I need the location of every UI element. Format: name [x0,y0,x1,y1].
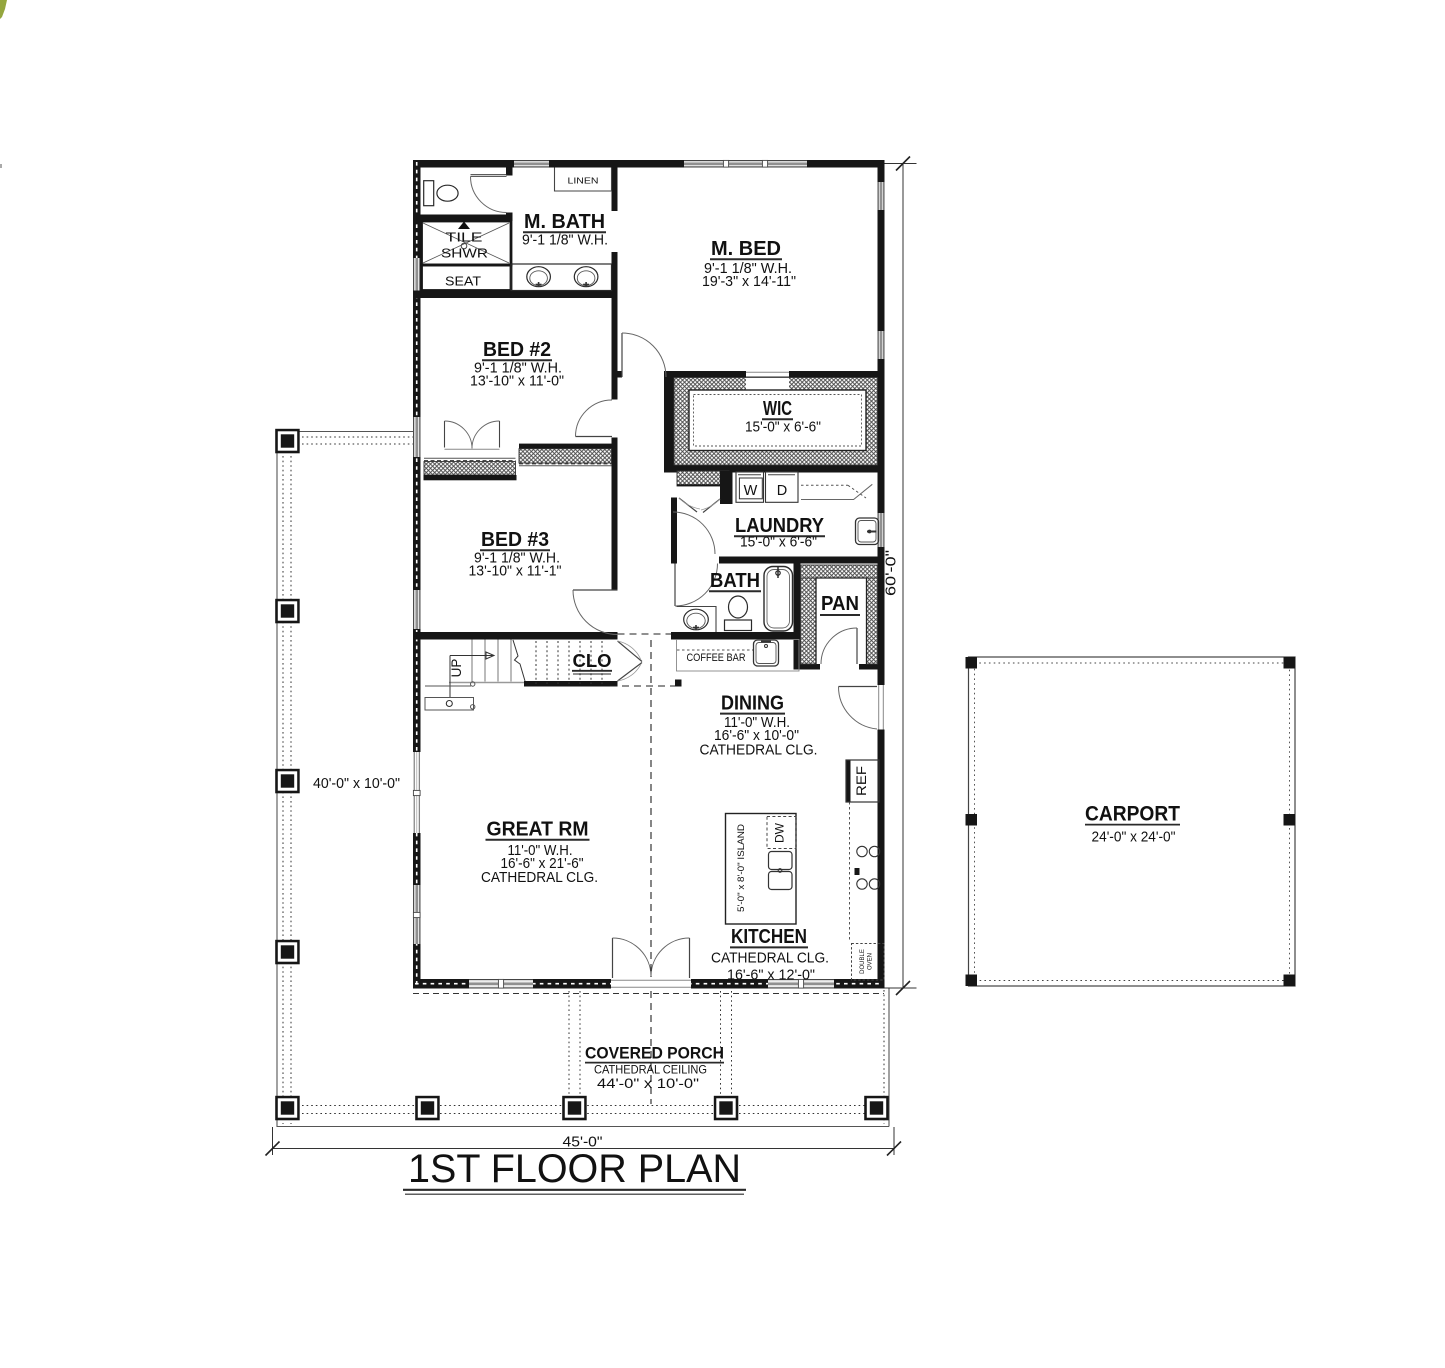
svg-text:24'-0" x 24'-0": 24'-0" x 24'-0" [1092,830,1176,846]
svg-text:LINEN: LINEN [568,177,599,186]
svg-text:16'-6" x 12'-0": 16'-6" x 12'-0" [727,967,815,984]
svg-text:CATHEDRAL CEILING: CATHEDRAL CEILING [594,1063,707,1077]
svg-text:W: W [744,483,758,499]
svg-text:40'-0" x 10'-0": 40'-0" x 10'-0" [313,776,400,792]
svg-text:CATHEDRAL CLG.: CATHEDRAL CLG. [711,950,829,967]
svg-text:1ST FLOOR PLAN: 1ST FLOOR PLAN [408,1147,741,1191]
svg-text:CATHEDRAL CLG.: CATHEDRAL CLG. [700,742,818,759]
svg-text:CARPORT: CARPORT [1085,803,1180,826]
svg-text:CLO: CLO [573,651,612,671]
svg-text:OVEN: OVEN [868,953,874,970]
svg-text:19'-3" x 14'-11": 19'-3" x 14'-11" [702,273,796,290]
svg-text:15'-0" x 6'-6": 15'-0" x 6'-6" [740,534,817,551]
svg-text:KITCHEN: KITCHEN [731,926,807,948]
svg-text:CATHEDRAL CLG.: CATHEDRAL CLG. [481,869,598,886]
svg-text:SEAT: SEAT [445,275,481,289]
svg-text:M. BED: M. BED [711,238,781,260]
svg-text:REF: REF [854,766,869,796]
svg-text:BATH: BATH [710,570,760,592]
svg-text:DOUBLE: DOUBLE [860,949,866,974]
svg-text:13'-10" x 11'-1": 13'-10" x 11'-1" [469,563,562,580]
svg-text:GREAT RM: GREAT RM [487,819,589,841]
svg-text:COVERED PORCH: COVERED PORCH [585,1044,724,1063]
svg-text:BED #3: BED #3 [481,529,549,551]
svg-text:WIC: WIC [763,398,792,420]
svg-text:COFFEE BAR: COFFEE BAR [687,652,746,664]
svg-text:13'-10" x 11'-0": 13'-10" x 11'-0" [470,373,564,390]
svg-text:15'-0" x 6'-6": 15'-0" x 6'-6" [745,419,821,436]
svg-text:44'-0" x 10'-0": 44'-0" x 10'-0" [597,1076,699,1091]
svg-text:BED #2: BED #2 [483,339,551,361]
svg-text:PAN: PAN [821,593,859,615]
svg-text:M. BATH: M. BATH [524,211,605,233]
svg-text:TILE: TILE [446,230,483,245]
svg-text:DW: DW [773,822,787,843]
svg-text:5'-0" x 8'-0" ISLAND: 5'-0" x 8'-0" ISLAND [736,824,747,912]
svg-text:UP: UP [449,659,464,678]
svg-text:D: D [777,483,787,499]
svg-text:DINING: DINING [721,693,784,715]
svg-text:SHWR: SHWR [441,246,488,261]
svg-text:9'-1 1/8" W.H.: 9'-1 1/8" W.H. [522,232,608,249]
svg-text:60'-0": 60'-0" [883,550,900,596]
